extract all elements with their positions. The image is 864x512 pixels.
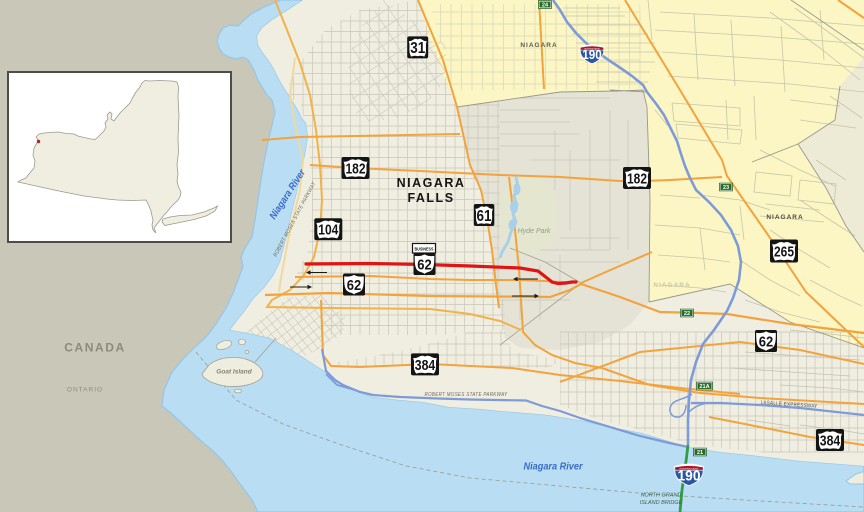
- svg-text:NIAGARA: NIAGARA: [653, 282, 690, 289]
- svg-text:NIAGARA: NIAGARA: [520, 42, 557, 49]
- svg-text:384: 384: [820, 432, 841, 449]
- svg-text:Hyde Park: Hyde Park: [518, 228, 551, 235]
- svg-text:265: 265: [774, 243, 794, 260]
- svg-text:62: 62: [417, 256, 432, 273]
- svg-text:24: 24: [542, 3, 549, 9]
- svg-text:FALLS: FALLS: [407, 191, 454, 205]
- svg-text:23: 23: [723, 185, 729, 191]
- svg-text:190: 190: [678, 468, 701, 484]
- svg-text:182: 182: [346, 160, 366, 177]
- svg-text:NORTH GRAND: NORTH GRAND: [641, 493, 682, 499]
- svg-text:22: 22: [684, 311, 690, 317]
- svg-text:21A: 21A: [699, 384, 709, 390]
- svg-text:NIAGARA: NIAGARA: [397, 176, 466, 190]
- svg-text:Niagara River: Niagara River: [524, 461, 584, 473]
- svg-text:104: 104: [318, 222, 339, 239]
- svg-text:62: 62: [347, 277, 362, 294]
- svg-text:NIAGARA: NIAGARA: [766, 214, 803, 221]
- svg-text:182: 182: [627, 170, 647, 187]
- svg-text:ONTARIO: ONTARIO: [67, 387, 103, 394]
- svg-text:ISLAND BRIDGE: ISLAND BRIDGE: [640, 500, 683, 506]
- svg-text:21: 21: [697, 450, 703, 456]
- svg-text:ROBERT MOSES STATE PARKWAY: ROBERT MOSES STATE PARKWAY: [425, 392, 508, 398]
- svg-text:31: 31: [410, 40, 425, 57]
- svg-text:CANADA: CANADA: [64, 341, 126, 355]
- svg-text:BUSINESS: BUSINESS: [415, 247, 434, 252]
- svg-text:Goat Island: Goat Island: [216, 369, 252, 376]
- svg-text:62: 62: [759, 333, 774, 350]
- svg-text:61: 61: [477, 208, 492, 225]
- svg-text:384: 384: [415, 357, 436, 374]
- svg-text:190: 190: [582, 47, 602, 62]
